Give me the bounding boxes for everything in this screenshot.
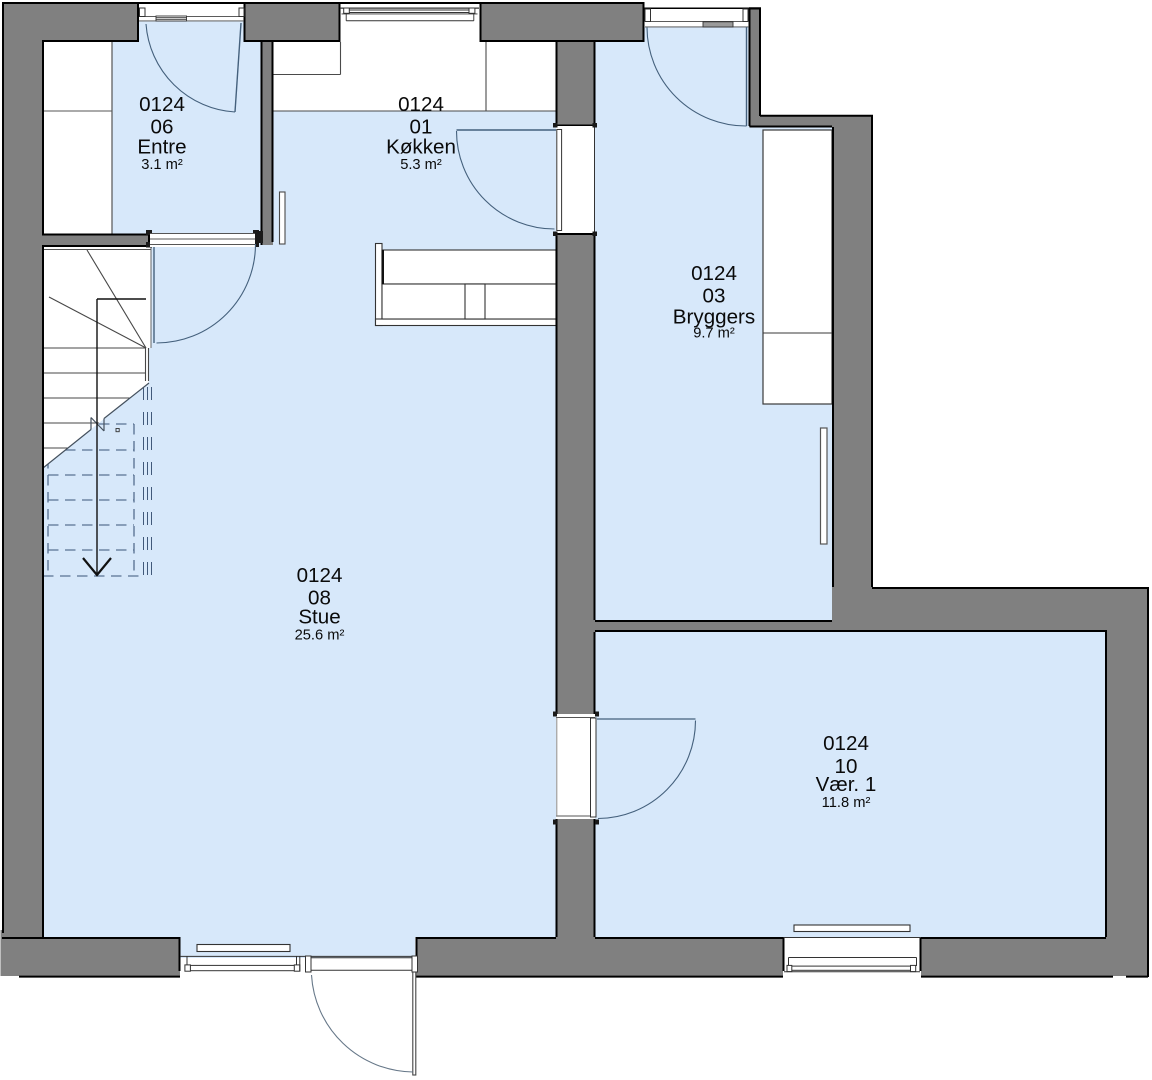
svg-text:0124: 0124 <box>139 93 185 116</box>
svg-text:0124: 0124 <box>691 262 737 285</box>
svg-text:Køkken: Køkken <box>386 135 456 158</box>
svg-text:3.1 m²: 3.1 m² <box>141 157 183 173</box>
svg-text:9.7 m²: 9.7 m² <box>693 325 735 341</box>
svg-text:Vær. 1: Vær. 1 <box>816 773 877 796</box>
svg-text:03: 03 <box>703 285 726 308</box>
svg-text:25.6 m²: 25.6 m² <box>295 628 345 644</box>
svg-text:0124: 0124 <box>823 732 869 755</box>
svg-text:Stue: Stue <box>298 606 340 629</box>
svg-text:0124: 0124 <box>297 564 343 587</box>
svg-text:5.3 m²: 5.3 m² <box>400 157 442 173</box>
svg-text:0124: 0124 <box>398 93 444 116</box>
svg-text:Entre: Entre <box>137 135 186 158</box>
svg-text:11.8 m²: 11.8 m² <box>822 795 871 811</box>
